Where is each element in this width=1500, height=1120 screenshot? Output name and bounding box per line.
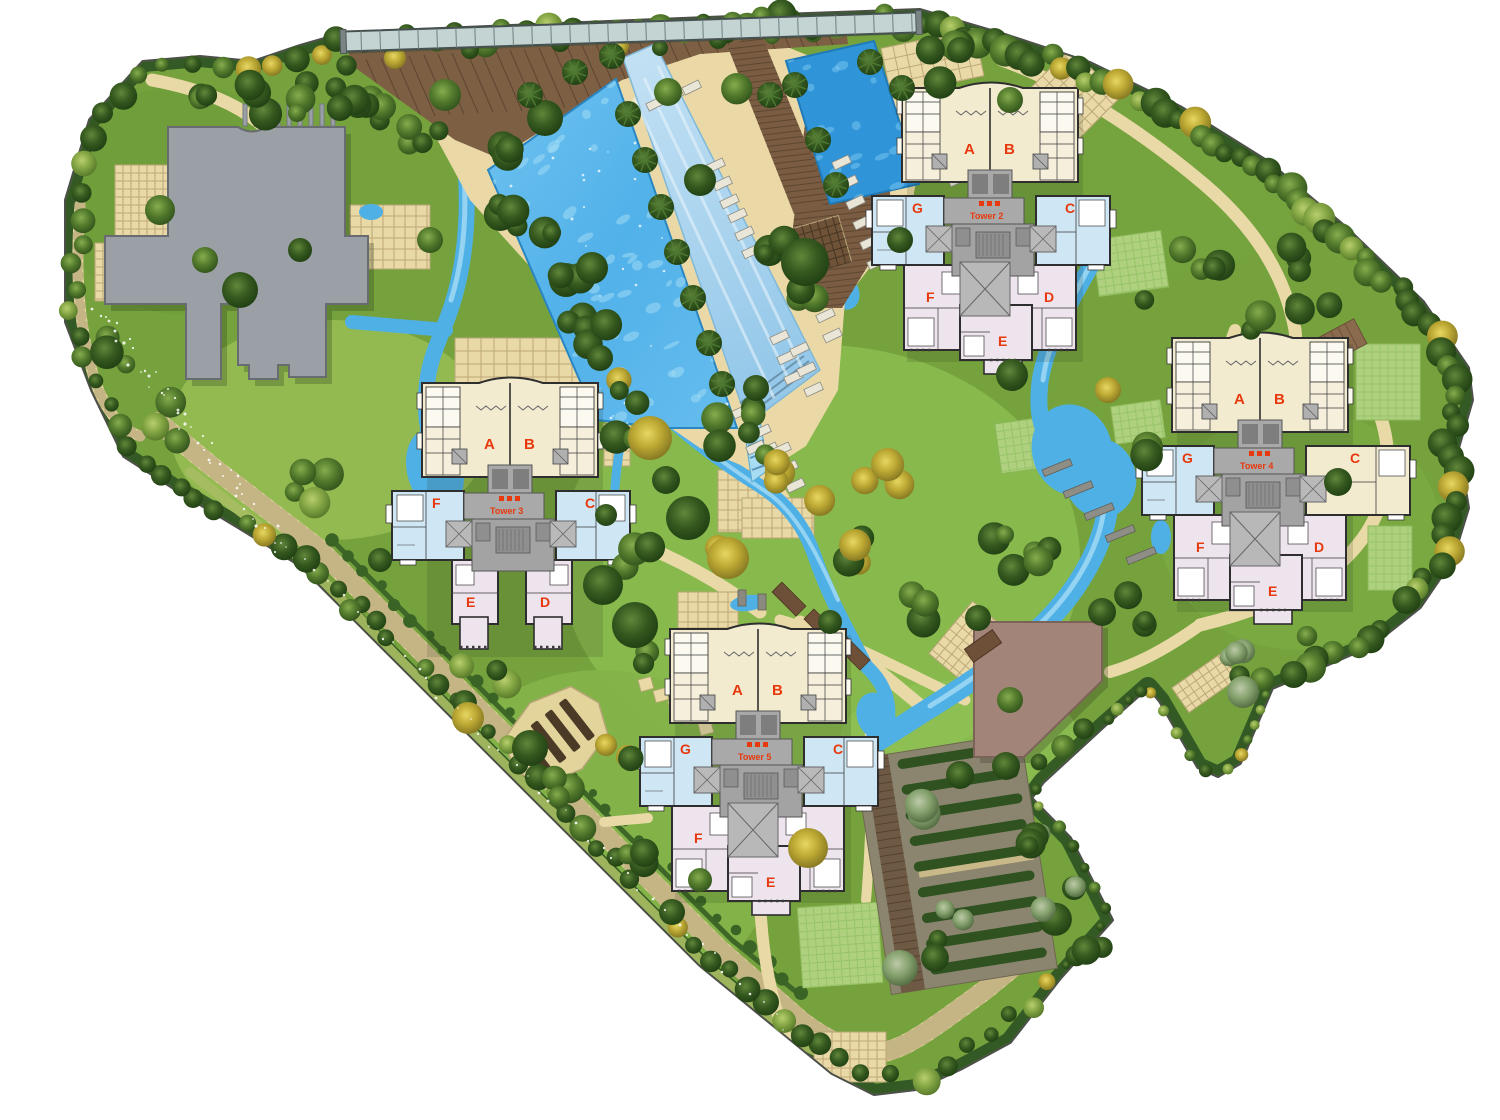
svg-text:D: D [1314,539,1324,555]
svg-text:E: E [766,874,775,890]
svg-text:E: E [466,594,475,610]
svg-text:Tower 4: Tower 4 [1240,461,1273,471]
svg-text:A: A [1234,391,1245,408]
svg-text:D: D [540,594,550,610]
svg-text:C: C [1350,450,1360,466]
svg-text:C: C [1065,200,1075,216]
svg-text:B: B [1004,141,1015,158]
svg-text:Tower 5: Tower 5 [738,752,771,762]
svg-text:D: D [1044,289,1054,305]
svg-text:A: A [732,682,743,699]
svg-text:B: B [1274,391,1285,408]
svg-text:A: A [964,141,975,158]
svg-text:C: C [833,741,843,757]
svg-text:E: E [998,333,1007,349]
svg-text:G: G [680,741,691,757]
svg-text:Tower 3: Tower 3 [490,506,523,516]
svg-text:C: C [585,495,595,511]
svg-text:F: F [694,830,703,846]
svg-text:Tower 2: Tower 2 [970,211,1003,221]
svg-text:B: B [772,682,783,699]
svg-text:F: F [1196,539,1205,555]
svg-text:F: F [926,289,935,305]
svg-text:G: G [912,200,923,216]
svg-text:F: F [432,495,441,511]
svg-text:B: B [524,436,535,453]
svg-text:E: E [1268,583,1277,599]
svg-text:A: A [484,436,495,453]
svg-text:G: G [1182,450,1193,466]
